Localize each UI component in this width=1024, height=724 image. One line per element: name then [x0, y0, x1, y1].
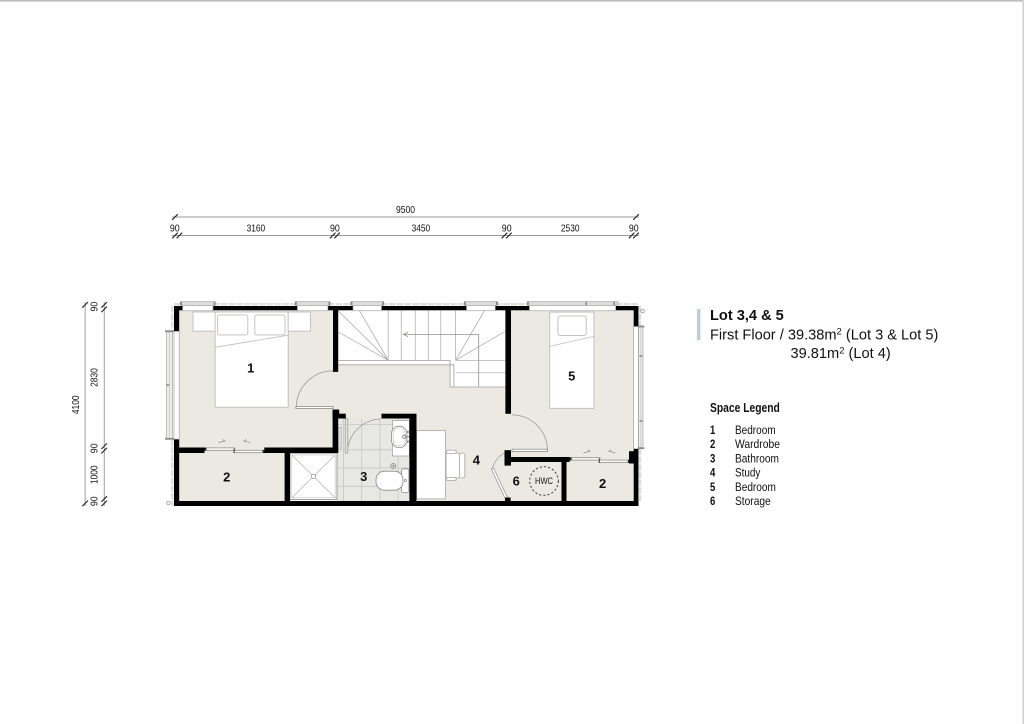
svg-text:Space Legend: Space Legend [710, 401, 780, 415]
svg-text:Bedroom: Bedroom [735, 480, 776, 494]
svg-text:3160: 3160 [247, 224, 266, 235]
svg-text:3: 3 [360, 469, 367, 484]
svg-text:90: 90 [90, 443, 101, 453]
svg-text:90: 90 [170, 224, 180, 235]
svg-text:Wardrobe: Wardrobe [735, 437, 780, 451]
svg-text:HWC: HWC [535, 476, 553, 486]
svg-text:2830: 2830 [90, 368, 101, 387]
svg-text:90: 90 [629, 224, 639, 235]
svg-text:1000: 1000 [90, 465, 101, 484]
svg-text:9500: 9500 [396, 205, 415, 216]
svg-text:90: 90 [90, 302, 101, 312]
svg-text:Lot 3,4 & 5: Lot 3,4 & 5 [710, 308, 784, 324]
svg-text:3450: 3450 [412, 224, 431, 235]
svg-text:4100: 4100 [71, 395, 82, 414]
svg-text:90: 90 [330, 224, 340, 235]
svg-text:Storage: Storage [735, 494, 771, 508]
svg-text:2530: 2530 [561, 224, 580, 235]
svg-text:2: 2 [599, 476, 606, 491]
svg-text:1: 1 [247, 361, 254, 376]
svg-text:4: 4 [710, 466, 715, 480]
svg-text:4: 4 [473, 453, 481, 468]
svg-text:Bedroom: Bedroom [735, 423, 776, 437]
svg-text:39.81m2 (Lot 4): 39.81m2 (Lot 4) [791, 345, 891, 362]
svg-text:6: 6 [710, 494, 715, 508]
svg-text:6: 6 [513, 473, 520, 488]
svg-text:5: 5 [710, 480, 715, 494]
svg-text:First Floor / 39.38m2 (Lot 3 &: First Floor / 39.38m2 (Lot 3 & Lot 5) [710, 327, 938, 344]
svg-text:Bathroom: Bathroom [735, 451, 779, 465]
svg-text:90: 90 [502, 224, 512, 235]
svg-text:3: 3 [710, 451, 715, 465]
svg-text:Study: Study [735, 466, 761, 480]
svg-text:1: 1 [710, 423, 715, 437]
svg-text:2: 2 [223, 469, 230, 484]
svg-text:5: 5 [568, 369, 575, 384]
svg-text:2: 2 [710, 437, 715, 451]
svg-text:90: 90 [90, 496, 101, 506]
